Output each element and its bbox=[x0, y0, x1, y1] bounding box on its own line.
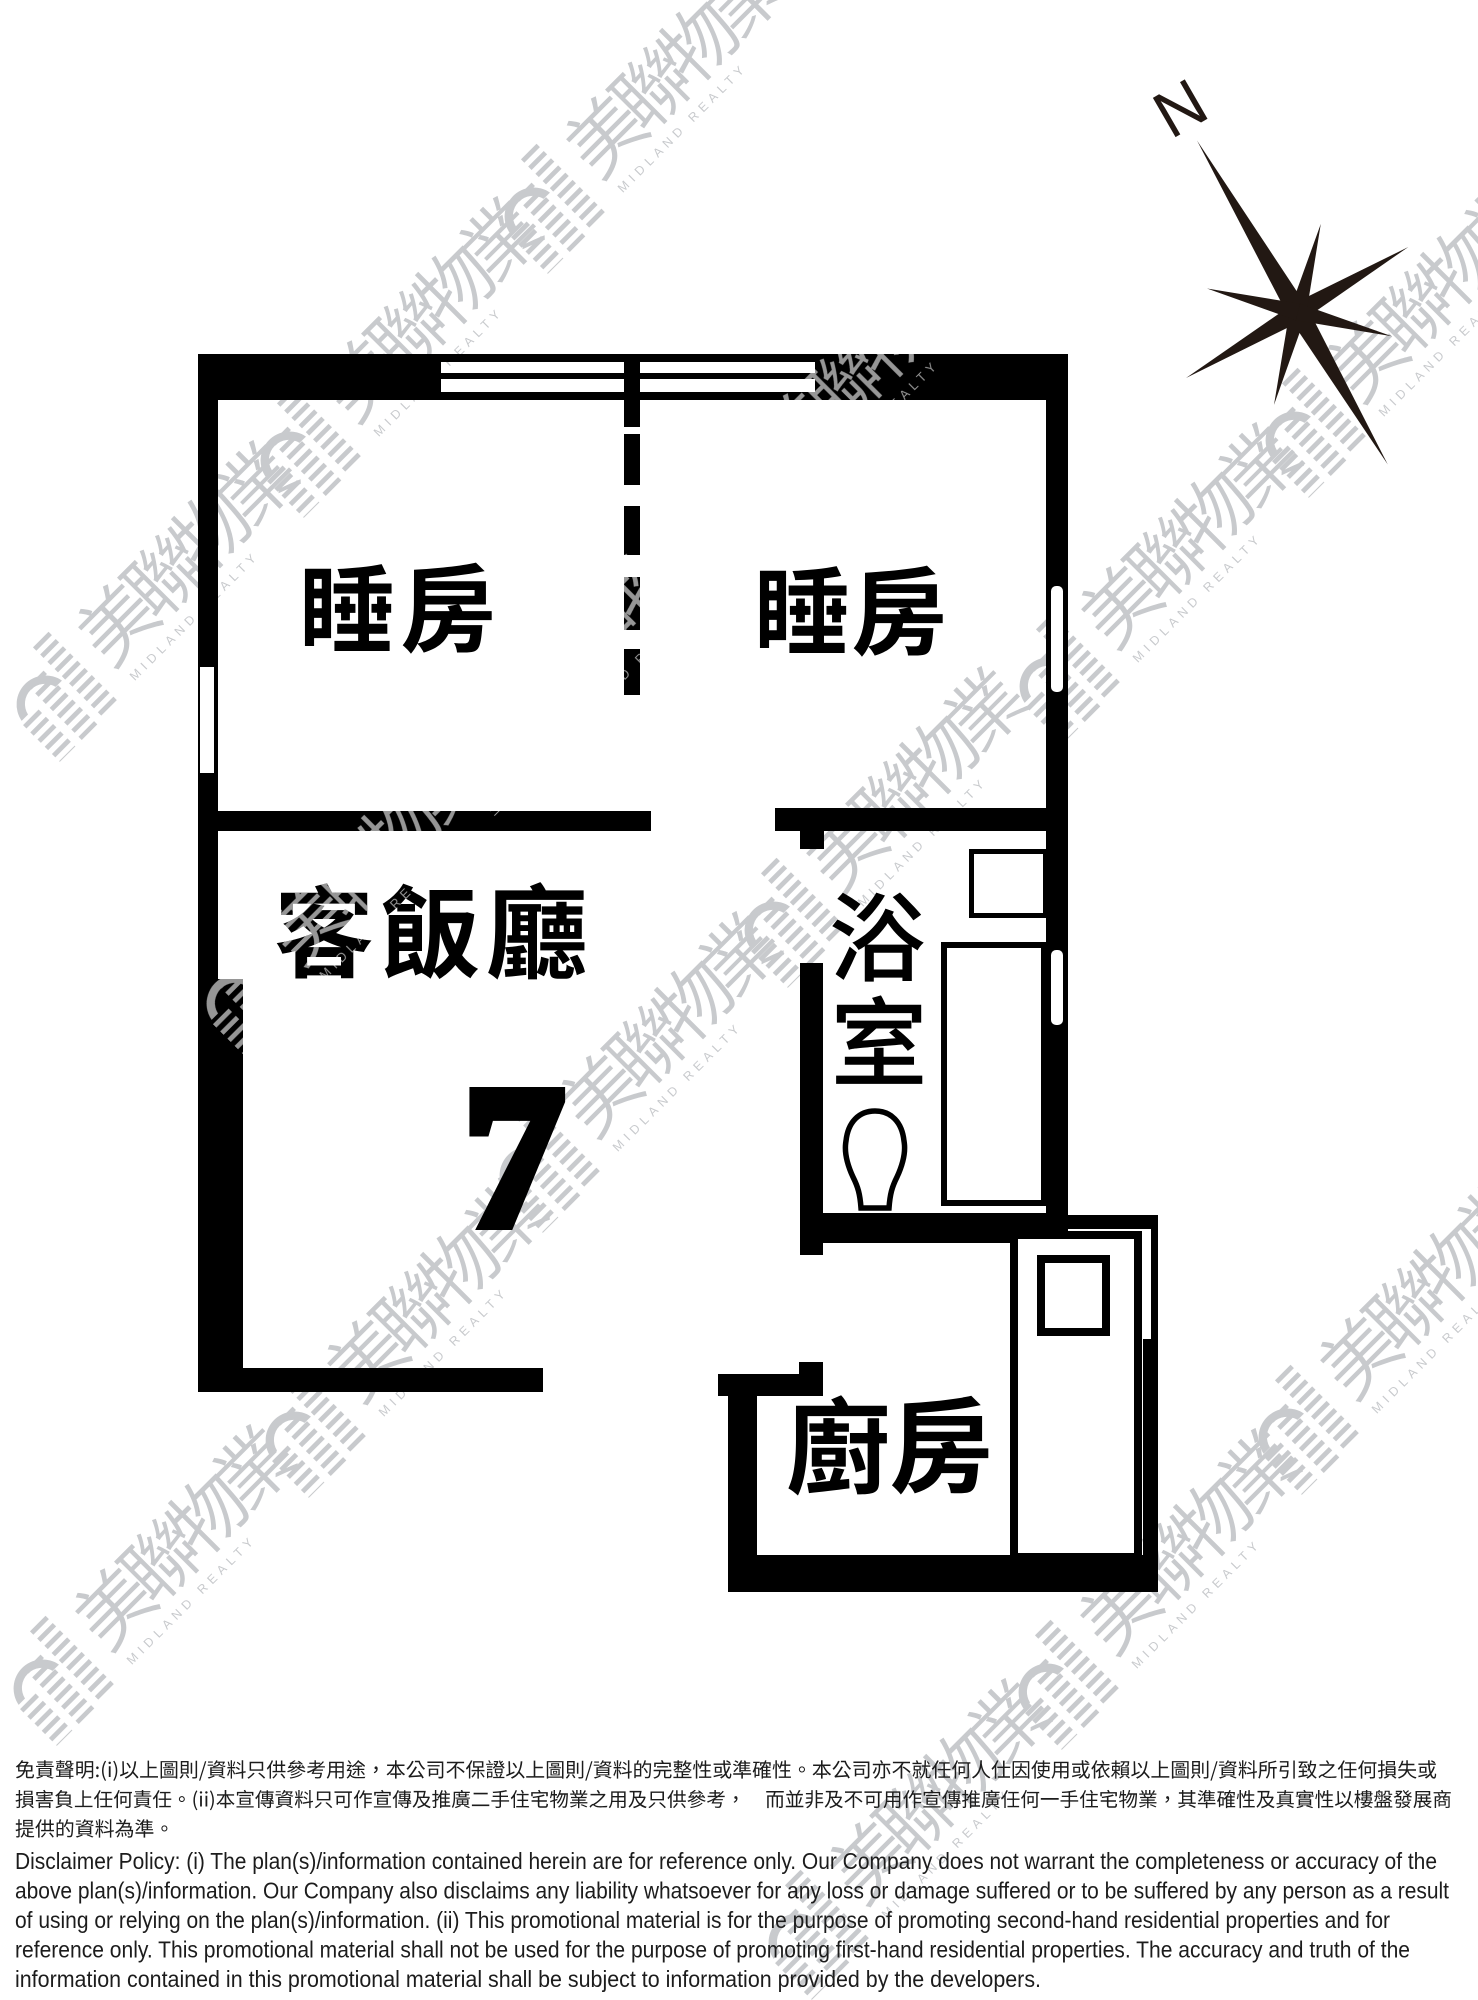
svg-text:7: 7 bbox=[464, 1047, 564, 1268]
svg-text:information contained in this: information contained in this promotiona… bbox=[15, 1966, 1041, 1992]
svg-text:of using or relying on the pla: of using or relying on the plan(s)/infor… bbox=[15, 1907, 1390, 1933]
svg-text:Disclaimer Policy: (i) The pla: Disclaimer Policy: (i) The plan(s)/infor… bbox=[15, 1848, 1437, 1874]
svg-text:above plan(s)/information. Our: above plan(s)/information. Our Company a… bbox=[15, 1878, 1449, 1904]
svg-text:reference only. This promotion: reference only. This promotional materia… bbox=[15, 1937, 1410, 1963]
